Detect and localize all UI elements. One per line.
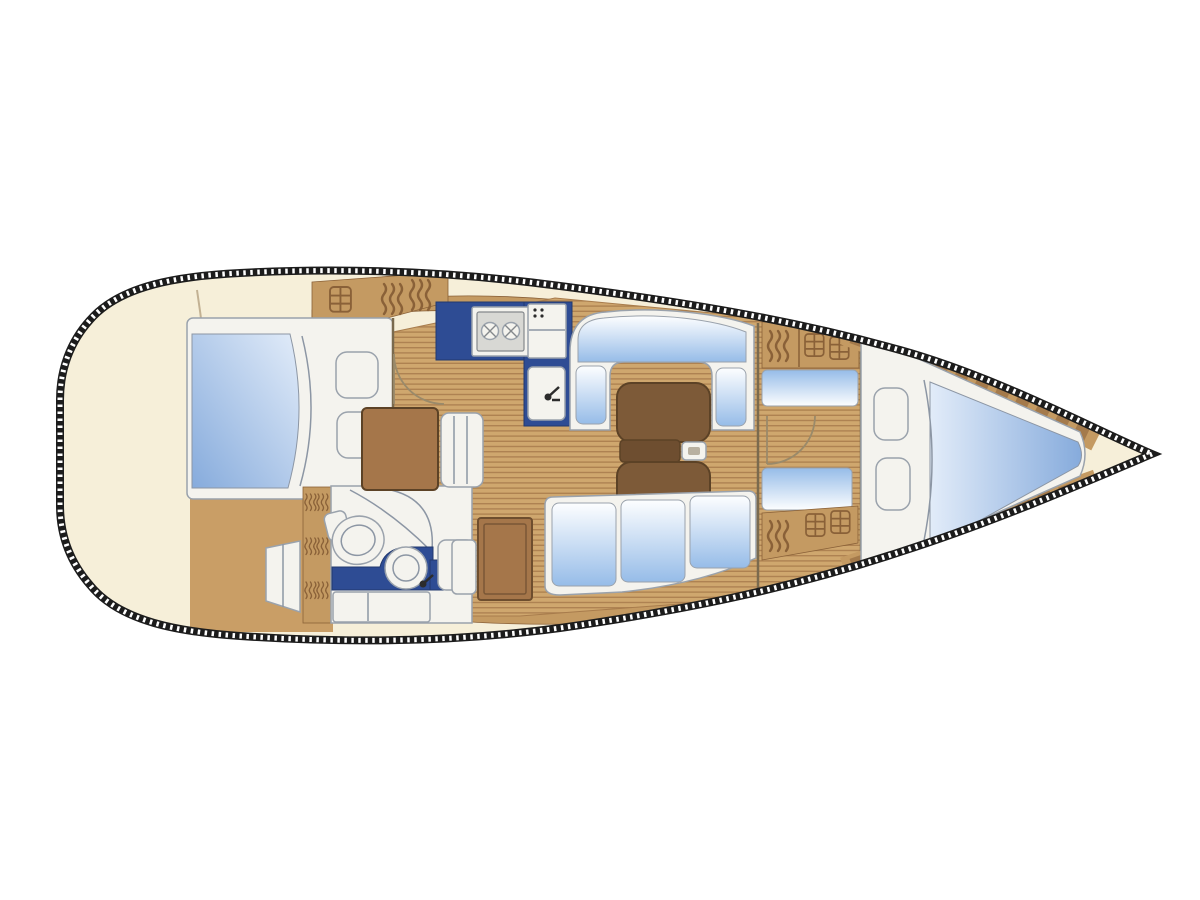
refrigerator — [528, 304, 566, 358]
table-latch-detail — [688, 447, 700, 455]
settee-end-panel — [452, 540, 476, 594]
u-settee-right-cushion — [716, 368, 746, 426]
aft-pillow-1 — [336, 352, 378, 398]
settee-cushion-1 — [552, 503, 616, 586]
corridor-shelf-top — [762, 370, 858, 406]
chart-table — [362, 408, 438, 490]
forward-cabin — [845, 330, 1098, 572]
boat-floor-plan-canvas — [0, 0, 1200, 900]
nav-seat — [441, 413, 483, 487]
u-settee-left-cushion — [576, 366, 606, 424]
forward-pillow-1 — [874, 388, 908, 440]
settee-cushion-2 — [621, 500, 685, 582]
hanging-locker — [303, 487, 331, 623]
galley-sink — [528, 367, 565, 420]
storage-cabinet — [478, 518, 532, 600]
boat-floor-plan — [0, 0, 1200, 900]
settee-cushion-3 — [690, 496, 750, 568]
aft-berth-blanket — [192, 334, 299, 488]
stove — [472, 307, 529, 356]
forward-pillow-2 — [876, 458, 910, 510]
companionway-steps — [266, 541, 300, 612]
head-bench — [333, 592, 430, 622]
corridor-shelf-bottom — [762, 468, 852, 510]
